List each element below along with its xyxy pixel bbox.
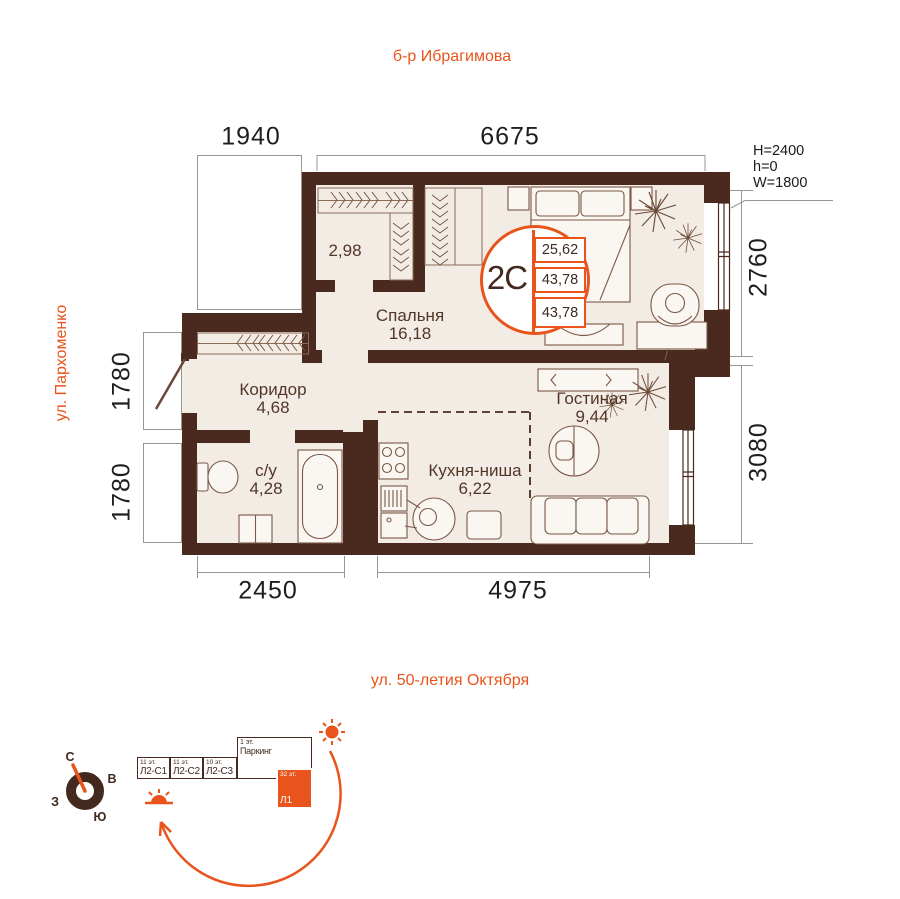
wall-left-mid xyxy=(182,332,197,359)
compass-north-label: С xyxy=(65,750,74,764)
dim-top-section: 1940 xyxy=(221,123,281,152)
dim-top-main: 6675 xyxy=(480,123,540,152)
dim-left-lower: 1780 xyxy=(108,462,137,522)
room-label-corridor: Коридор 4,68 xyxy=(239,381,306,417)
room-name: Коридор xyxy=(239,381,306,399)
room-name: Кухня-ниша xyxy=(428,462,521,480)
compass-east-label: В xyxy=(107,772,116,786)
building-label: Паркинг xyxy=(238,746,311,756)
site-building-l2-c2: 11 эт. Л2-С2 xyxy=(170,757,203,779)
dim-bottom-right: 4975 xyxy=(488,577,548,606)
building-floors: 11 эт. xyxy=(171,758,202,766)
wall-bedroom-right-bottom xyxy=(704,310,730,350)
building-label: Л2-С1 xyxy=(138,766,169,777)
room-name: Спальня xyxy=(376,307,444,325)
street-label-left: ул. Пархоменко xyxy=(53,305,71,422)
building-floors: 32 эт. xyxy=(278,770,311,778)
compass-icon xyxy=(71,765,99,805)
wall-living-right-top xyxy=(669,363,695,430)
wall-top xyxy=(302,172,730,185)
unit-area-value: 43,78 xyxy=(534,297,586,328)
room-name: с/у xyxy=(249,462,282,480)
bedroom-window-niche xyxy=(704,203,730,310)
wall-bath-top-right xyxy=(295,430,343,443)
wall-wardrobe-right xyxy=(413,185,425,292)
window-param-width: W=1800 xyxy=(753,175,807,191)
dim-right-lower: 3080 xyxy=(745,422,774,482)
room-area: 16,18 xyxy=(376,325,444,343)
wall-wardrobe-bottom-left xyxy=(302,280,335,292)
unit-area-value: 25,62 xyxy=(534,237,586,263)
wall-living-right-bottom xyxy=(669,525,695,555)
compass-south-label: Ю xyxy=(94,810,107,824)
street-label-top: б-р Ибрагимова xyxy=(393,48,511,66)
window-param-sill: h=0 xyxy=(753,159,807,175)
sunset-icon xyxy=(145,789,173,803)
window-params: H=2400 h=0 W=1800 xyxy=(753,143,807,191)
room-label-wardrobe: 2,98 xyxy=(328,242,361,260)
site-tower-l1: 32 эт. Л1 xyxy=(276,768,313,809)
wall-bath-top-left xyxy=(182,430,250,443)
floorplan-canvas: б-р Ибрагимова ул. Пархоменко ул. 50-лет… xyxy=(0,0,900,899)
wall-bedroom-right-top xyxy=(704,172,730,203)
street-label-bottom: ул. 50-летия Октября xyxy=(371,672,529,690)
room-label-bathroom: с/у 4,28 xyxy=(249,462,282,498)
wall-left-upper-foot xyxy=(302,350,322,363)
room-area: 6,22 xyxy=(428,480,521,498)
room-label-bedroom: Спальня 16,18 xyxy=(376,307,444,343)
site-building-l2-c3: 10 эт. Л2-С3 xyxy=(203,757,237,779)
wall-bottom xyxy=(182,543,695,555)
building-label: Л2-С2 xyxy=(171,766,202,777)
building-floors: 10 эт. xyxy=(204,758,236,766)
stairwell-outline xyxy=(198,156,302,310)
wall-right-step xyxy=(695,347,730,377)
wall-left-upper xyxy=(302,172,316,363)
room-label-kitchen: Кухня-ниша 6,22 xyxy=(428,462,521,498)
unit-area-value: 43,78 xyxy=(534,267,586,293)
wall-kitchen-pier-tab xyxy=(363,420,378,432)
sun-icon xyxy=(319,719,345,745)
building-label: Л1 xyxy=(278,795,311,807)
room-label-living: Гостиная 9,44 xyxy=(556,390,627,426)
room-area: 4,68 xyxy=(239,399,306,417)
dim-left-upper: 1780 xyxy=(108,351,137,411)
dim-bottom-left: 2450 xyxy=(238,577,298,606)
floor-kitchen-living-zone xyxy=(343,363,695,555)
wall-kitchen-pier xyxy=(343,432,378,543)
living-window-niche xyxy=(669,430,695,525)
building-label: Л2-С3 xyxy=(204,766,236,777)
building-floors: 1 эт. xyxy=(238,738,311,746)
room-area: 9,44 xyxy=(556,408,627,426)
site-building-l2-c1: 11 эт. Л2-С1 xyxy=(137,757,170,779)
wall-bedroom-bottom xyxy=(368,350,695,363)
room-area: 4,28 xyxy=(249,480,282,498)
building-floors: 11 эт. xyxy=(138,758,169,766)
dim-right-upper: 2760 xyxy=(745,237,774,297)
unit-type: 2С xyxy=(482,259,532,297)
wall-wardrobe-bottom-right xyxy=(373,280,425,292)
room-name: Гостиная xyxy=(556,390,627,408)
compass-west-label: З xyxy=(51,795,59,809)
wall-corridor-top xyxy=(182,313,302,332)
window-param-height: H=2400 xyxy=(753,143,807,159)
